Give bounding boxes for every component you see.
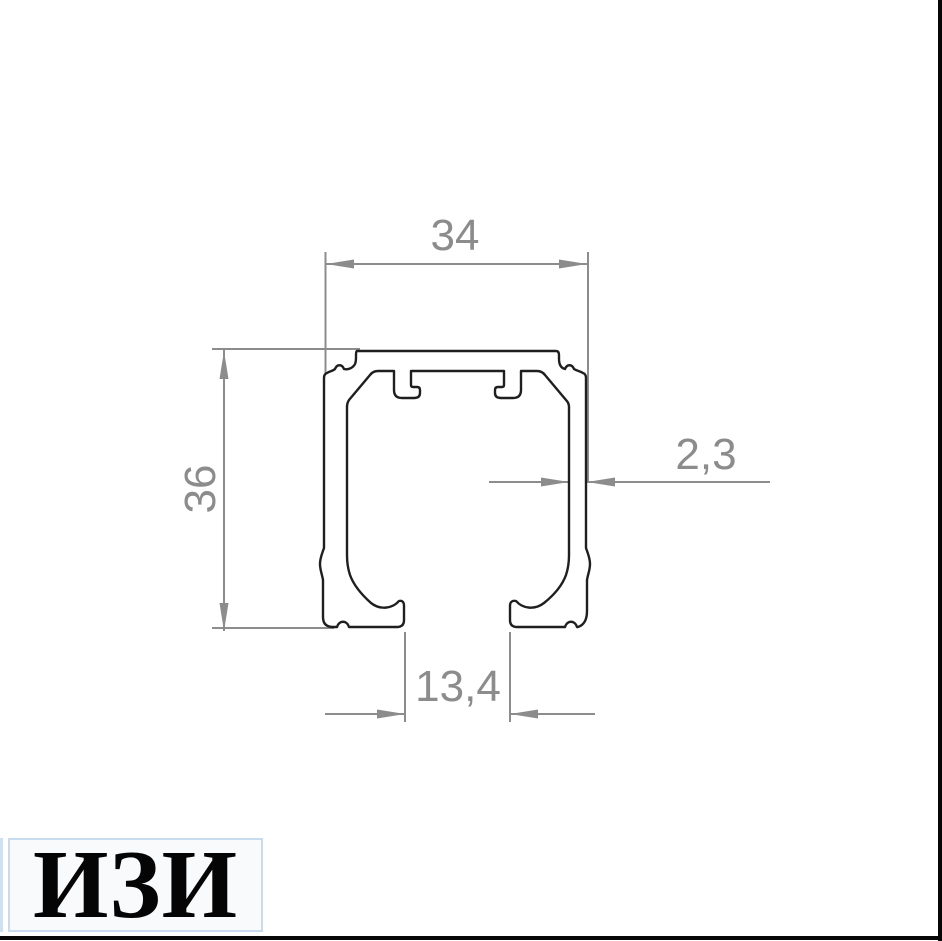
technical-drawing: 34 36 2,3 13,4 — [0, 0, 942, 941]
arrow-34-left — [326, 260, 354, 269]
dim-36-value: 36 — [176, 465, 225, 514]
dim-23-value: 2,3 — [675, 430, 736, 479]
bottom-edge-line — [0, 936, 942, 940]
dim-34-value: 34 — [431, 211, 480, 260]
arrow-23-left — [541, 478, 569, 487]
arrow-34-right — [559, 260, 587, 269]
dim-134-value: 13,4 — [415, 662, 501, 711]
drawing-page: 34 36 2,3 13,4 ИЗИ — [0, 0, 942, 941]
right-edge-line — [938, 0, 942, 941]
logo-text: ИЗИ — [33, 840, 238, 930]
dimension-lines — [212, 252, 770, 722]
arrow-134-right — [510, 710, 538, 719]
dimension-labels: 34 36 2,3 13,4 — [176, 211, 737, 711]
arrow-23-right — [587, 478, 615, 487]
arrow-134-left — [377, 710, 405, 719]
logo-box: ИЗИ — [8, 838, 263, 932]
arrow-36-bottom — [220, 603, 229, 631]
logo-left-strip — [0, 838, 3, 932]
arrow-36-top — [220, 351, 229, 379]
profile-outline — [320, 351, 590, 627]
dimension-arrowheads — [220, 260, 616, 719]
